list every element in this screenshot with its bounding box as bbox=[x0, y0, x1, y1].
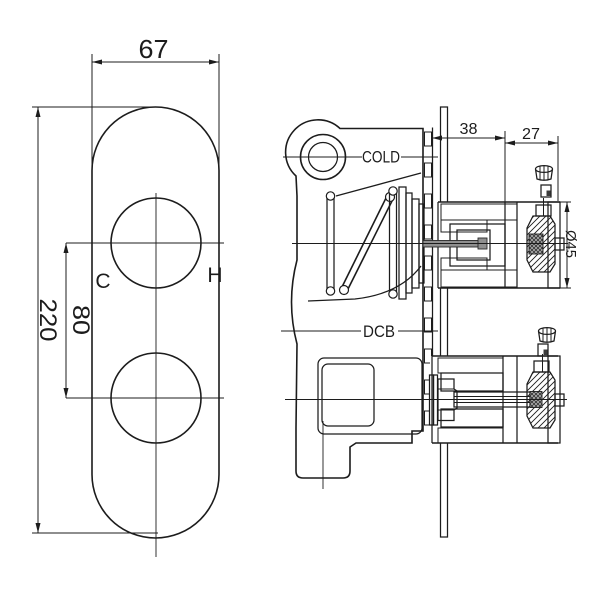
side-section-view: COLD DCB 38 27 Ø45 bbox=[281, 107, 579, 537]
dimension-rough-in-depth: 38 bbox=[432, 121, 505, 203]
dcb-label: DCB bbox=[363, 322, 395, 341]
hot-label: H bbox=[207, 264, 222, 287]
dimension-handle-spacing: 80 bbox=[64, 243, 95, 398]
lower-cartridge-assembly bbox=[430, 328, 565, 443]
cold-label: C bbox=[95, 270, 110, 293]
dimension-plate-height: 220 bbox=[32, 107, 158, 533]
cap-screw-icon bbox=[539, 328, 556, 343]
dimension-plate-width: 67 bbox=[92, 34, 219, 172]
spline-adapter bbox=[529, 234, 543, 254]
shower-valve-drawing: 67 220 80 C H bbox=[0, 0, 600, 600]
dim-height-text: 220 bbox=[34, 299, 61, 342]
upper-cartridge-assembly bbox=[423, 166, 564, 288]
technical-drawing-page: 67 220 80 C H bbox=[0, 0, 600, 600]
cap-screw-icon bbox=[536, 166, 553, 181]
wall-line bbox=[441, 107, 448, 537]
cold-inlet-label: COLD bbox=[362, 148, 400, 167]
internal-mechanism bbox=[326, 187, 424, 299]
dim-27-text: 27 bbox=[522, 126, 540, 143]
dimension-trim-depth: 27 bbox=[505, 126, 558, 201]
dim-45-text: Ø45 bbox=[562, 230, 579, 258]
front-view: 67 220 80 C H bbox=[32, 34, 224, 557]
dim-38-text: 38 bbox=[460, 121, 478, 138]
dimension-handle-diameter: Ø45 bbox=[560, 202, 579, 288]
dim-spacing-text: 80 bbox=[67, 305, 94, 335]
valve-body bbox=[286, 120, 433, 478]
screw-plug-icon bbox=[541, 185, 551, 197]
faceplate-outline bbox=[92, 107, 219, 538]
dim-width-text: 67 bbox=[139, 34, 169, 64]
